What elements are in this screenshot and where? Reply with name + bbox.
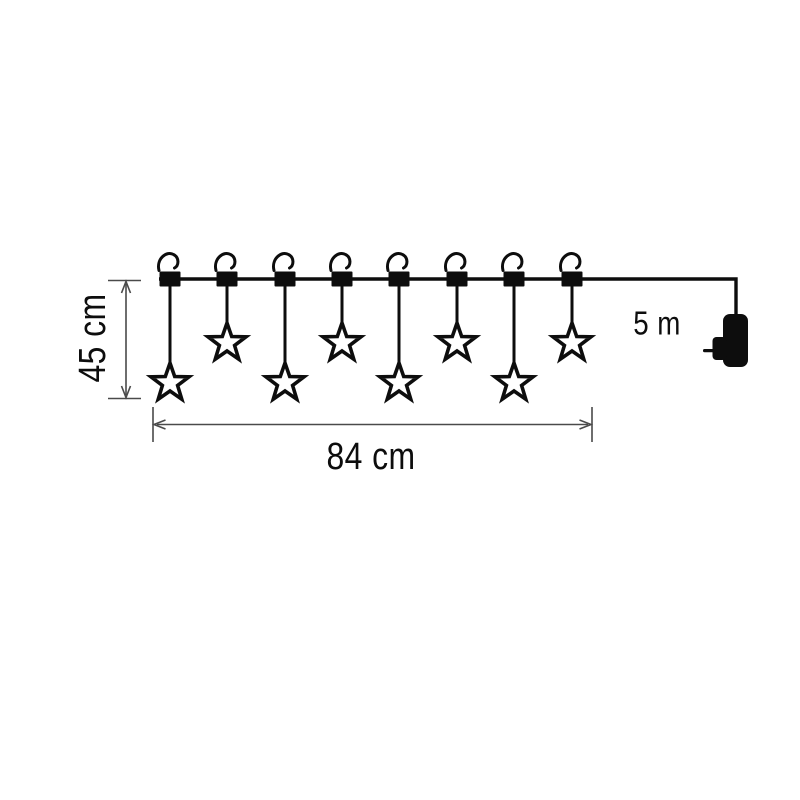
star-light-icon: [495, 363, 533, 399]
star-light-icon: [323, 323, 361, 359]
light-drop-3-long: [266, 253, 304, 399]
width-dimension-label: 84 cm: [318, 438, 424, 476]
hook-icon: [445, 253, 467, 286]
height-dimension-label: 45 cm: [74, 285, 112, 391]
height-dimension-text: 45 cm: [74, 293, 112, 382]
light-drop-6-short: [438, 253, 476, 359]
cable-length-text: 5 m: [633, 307, 680, 340]
hook-icon: [560, 253, 582, 286]
light-drop-4-short: [323, 253, 361, 359]
cable-length-label: 5 m: [629, 307, 686, 340]
star-light-icon: [380, 363, 418, 399]
star-light-icon: [266, 363, 304, 399]
light-drop-2-short: [208, 253, 246, 359]
light-drop-1-long: [151, 253, 189, 399]
diagram-canvas: 45 cm 84 cm 5 m: [0, 0, 800, 800]
width-dimension-text: 84 cm: [326, 438, 415, 476]
hook-icon: [330, 253, 352, 286]
hook-icon: [502, 253, 524, 286]
star-light-icon: [208, 323, 246, 359]
hook-icon: [387, 253, 409, 286]
star-light-icon: [438, 323, 476, 359]
star-light-icon: [553, 323, 591, 359]
hook-icon: [273, 253, 295, 286]
star-light-icon: [151, 363, 189, 399]
power-plug-icon: [703, 314, 748, 367]
light-drops: [151, 253, 591, 399]
light-drop-5-long: [380, 253, 418, 399]
hook-icon: [158, 253, 180, 286]
light-drop-8-short: [553, 253, 591, 359]
hook-icon: [215, 253, 237, 286]
light-drop-7-long: [495, 253, 533, 399]
light-curtain-drawing: [0, 0, 800, 800]
